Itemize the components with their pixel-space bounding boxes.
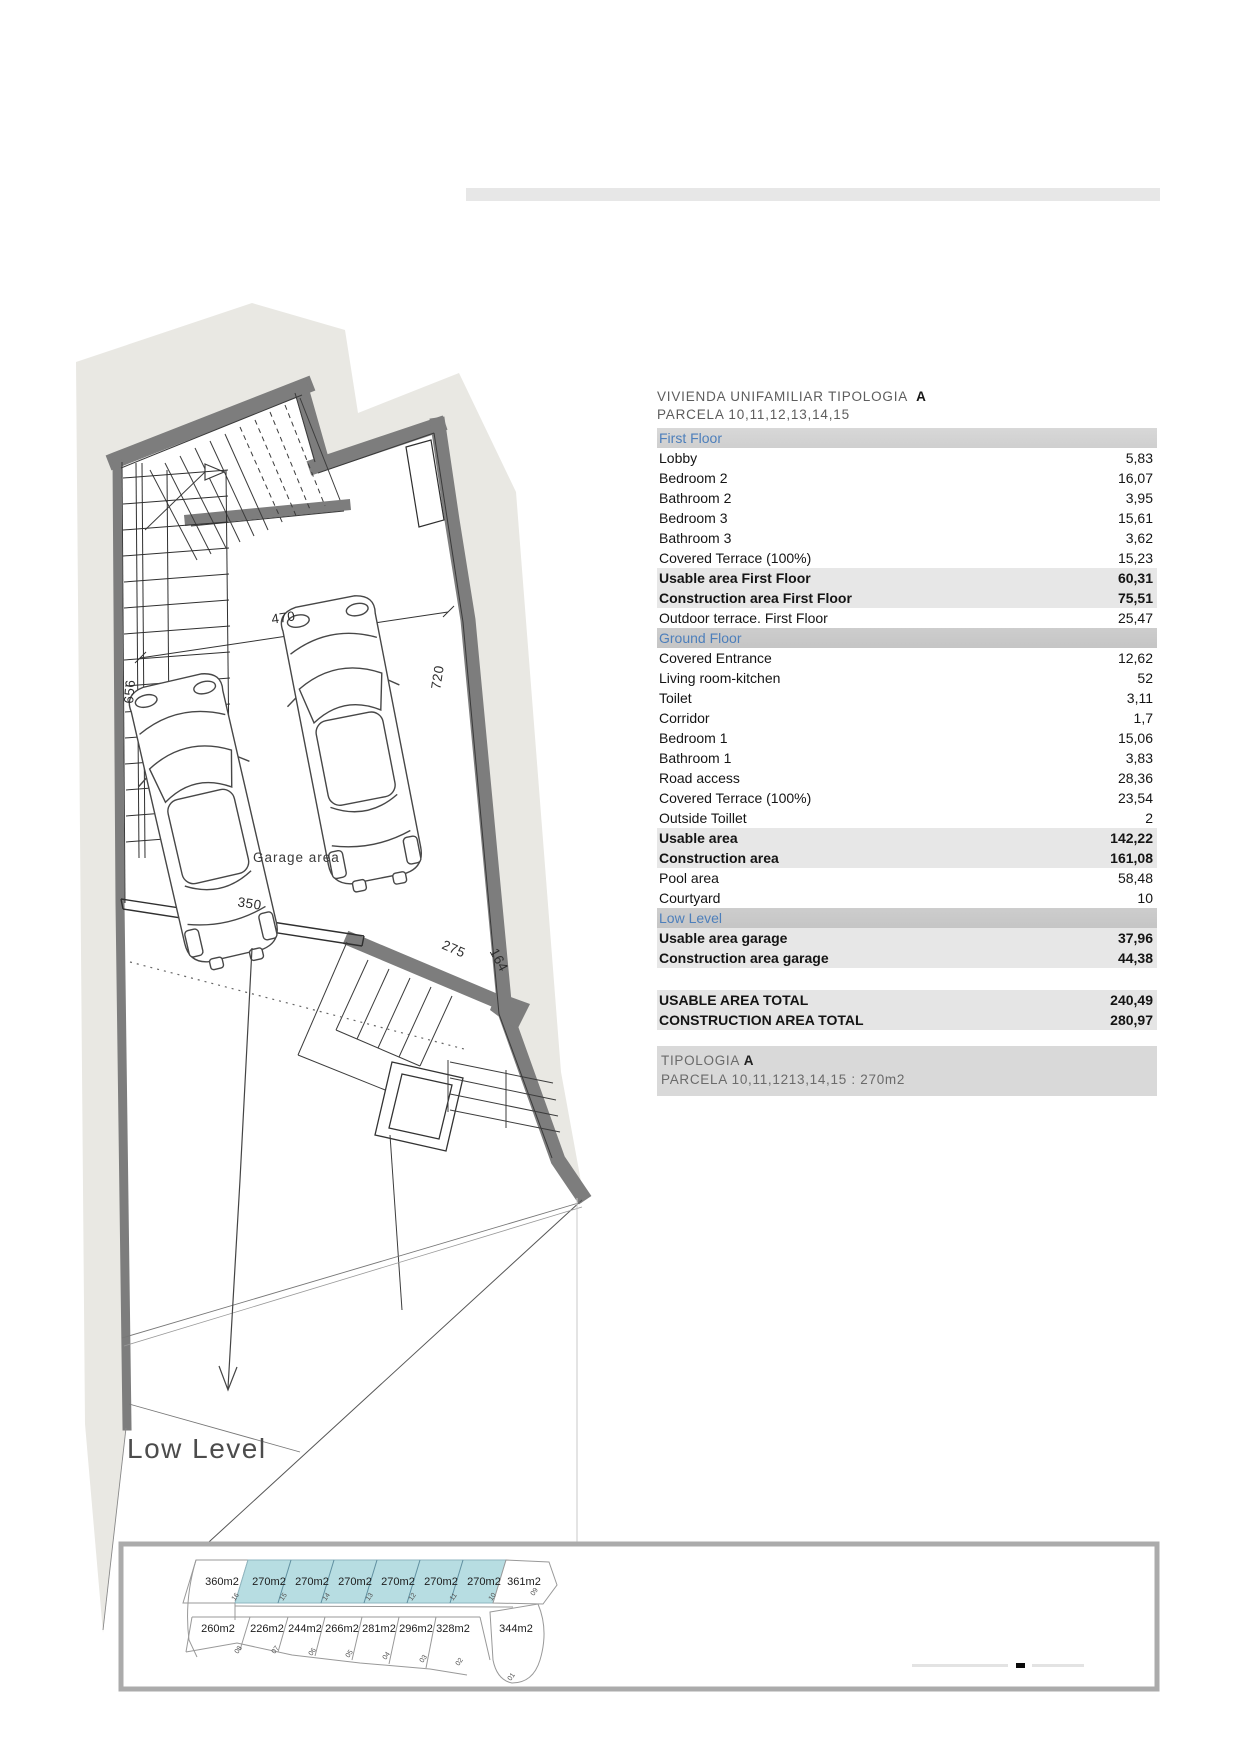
table-row: Outside Toillet2 — [657, 808, 1157, 828]
garage-area-label: Garage area — [253, 850, 340, 865]
table-row: Bedroom 115,06 — [657, 728, 1157, 748]
table-row: Outdoor terrace. First Floor25,47 — [657, 608, 1157, 628]
table-row: Living room-kitchen52 — [657, 668, 1157, 688]
table-row-subtotal: Usable area First Floor60,31 — [657, 568, 1157, 588]
svg-text:328m2: 328m2 — [436, 1623, 470, 1635]
table-row-subtotal: Construction area First Floor75,51 — [657, 588, 1157, 608]
table-row: Covered Terrace (100%)23,54 — [657, 788, 1157, 808]
table-totals: USABLE AREA TOTAL240,49 CONSTRUCTION ARE… — [657, 990, 1157, 1030]
dim-720: 720 — [428, 664, 447, 690]
strip-faint-text-left — [912, 1664, 1008, 1667]
table-gap — [657, 968, 1157, 990]
total-usable-area: USABLE AREA TOTAL240,49 — [657, 990, 1157, 1010]
car-left — [117, 668, 294, 977]
footer-line2: PARCELA 10,11,1213,14,15 : 270m2 — [661, 1070, 1151, 1089]
svg-text:270m2: 270m2 — [381, 1576, 415, 1588]
table-row-subtotal: Construction area garage44,38 — [657, 948, 1157, 968]
table-row-subtotal: Construction area161,08 — [657, 848, 1157, 868]
table-row: Bathroom 13,83 — [657, 748, 1157, 768]
svg-text:270m2: 270m2 — [252, 1576, 286, 1588]
svg-text:266m2: 266m2 — [325, 1623, 359, 1635]
table-row: Covered Terrace (100%)15,23 — [657, 548, 1157, 568]
svg-text:226m2: 226m2 — [250, 1623, 284, 1635]
svg-text:270m2: 270m2 — [295, 1576, 329, 1588]
strip-black-mark — [1016, 1663, 1025, 1668]
courtyard-lines — [103, 962, 582, 1630]
table-row: Toilet3,11 — [657, 688, 1157, 708]
pool — [375, 1062, 463, 1151]
svg-text:296m2: 296m2 — [399, 1623, 433, 1635]
section-ground-floor: Ground Floor — [657, 628, 1157, 648]
svg-text:270m2: 270m2 — [424, 1576, 458, 1588]
table-row: Bathroom 33,62 — [657, 528, 1157, 548]
table-row-subtotal: Usable area garage37,96 — [657, 928, 1157, 948]
table-row: Bathroom 23,95 — [657, 488, 1157, 508]
dim-275: 275 — [440, 937, 468, 960]
total-construction-area: CONSTRUCTION AREA TOTAL280,97 — [657, 1010, 1157, 1030]
section-low-level: Low Level — [657, 908, 1157, 928]
svg-text:360m2: 360m2 — [205, 1576, 239, 1588]
svg-text:244m2: 244m2 — [288, 1623, 322, 1635]
table-row: Covered Entrance12,62 — [657, 648, 1157, 668]
area-schedule-table: VIVIENDA UNIFAMILIAR TIPOLOGIAA PARCELA … — [657, 388, 1157, 1096]
section-first-floor: First Floor — [657, 428, 1157, 448]
table-row: Pool area58,48 — [657, 868, 1157, 888]
table-row: Bedroom 216,07 — [657, 468, 1157, 488]
svg-text:344m2: 344m2 — [499, 1623, 533, 1635]
svg-text:270m2: 270m2 — [338, 1576, 372, 1588]
table-row: Road access28,36 — [657, 768, 1157, 788]
typology-letter: A — [916, 389, 926, 404]
table-row: Bedroom 315,61 — [657, 508, 1157, 528]
low-level-label: Low Level — [127, 1433, 267, 1464]
svg-text:281m2: 281m2 — [362, 1623, 396, 1635]
svg-text:260m2: 260m2 — [201, 1623, 235, 1635]
table-subtitle: PARCELA 10,11,12,13,14,15 — [657, 406, 1157, 424]
typology-footer-block: TIPOLOGIA A PARCELA 10,11,1213,14,15 : 2… — [657, 1046, 1157, 1096]
ramp-arrow — [219, 948, 252, 1390]
svg-text:361m2: 361m2 — [507, 1576, 541, 1588]
svg-text:270m2: 270m2 — [467, 1576, 501, 1588]
dim-656: 656 — [121, 679, 138, 704]
footer-line1: TIPOLOGIA A — [661, 1051, 1151, 1070]
top-divider-bar — [466, 188, 1160, 201]
table-row: Corridor1,7 — [657, 708, 1157, 728]
table-row-subtotal: Usable area142,22 — [657, 828, 1157, 848]
table-title: VIVIENDA UNIFAMILIAR TIPOLOGIAA — [657, 388, 1157, 406]
table-row: Lobby5,83 — [657, 448, 1157, 468]
table-row: Courtyard10 — [657, 888, 1157, 908]
strip-faint-text-right — [1032, 1664, 1084, 1667]
site-strip: 360m2 270m2 270m2 270m2 270m2 270m2 270m… — [121, 1544, 1157, 1689]
